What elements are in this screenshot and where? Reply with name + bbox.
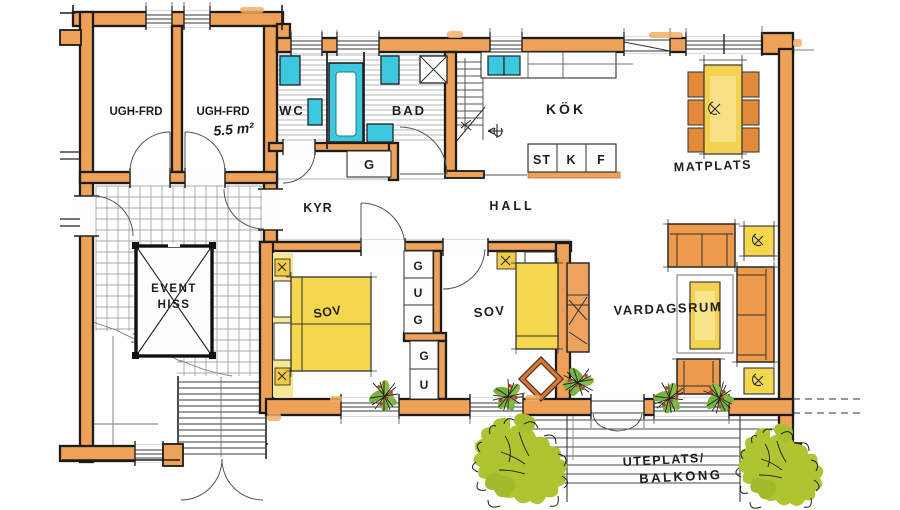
svg-text:G: G: [419, 349, 428, 363]
svg-text:MATPLATS: MATPLATS: [674, 158, 753, 175]
svg-text:F: F: [597, 153, 605, 167]
svg-text:G: G: [413, 313, 422, 327]
svg-text:UGH-FRD: UGH-FRD: [109, 106, 162, 118]
svg-text:BAD: BAD: [392, 103, 426, 118]
svg-text:HISS: HISS: [158, 299, 191, 311]
svg-text:UGH-FRD: UGH-FRD: [196, 106, 249, 118]
svg-text:KÖK: KÖK: [546, 101, 586, 117]
svg-text:U: U: [420, 378, 429, 392]
svg-text:SOV: SOV: [473, 303, 506, 321]
svg-text:KYR: KYR: [303, 201, 332, 215]
svg-text:U: U: [414, 286, 423, 300]
svg-text:WC: WC: [279, 103, 305, 118]
svg-text:ST: ST: [533, 153, 551, 167]
svg-text:G: G: [413, 259, 422, 273]
svg-text:K: K: [566, 153, 575, 167]
svg-text:G: G: [364, 157, 374, 172]
svg-text:HALL: HALL: [489, 199, 534, 213]
svg-text:EVENT: EVENT: [151, 283, 197, 295]
